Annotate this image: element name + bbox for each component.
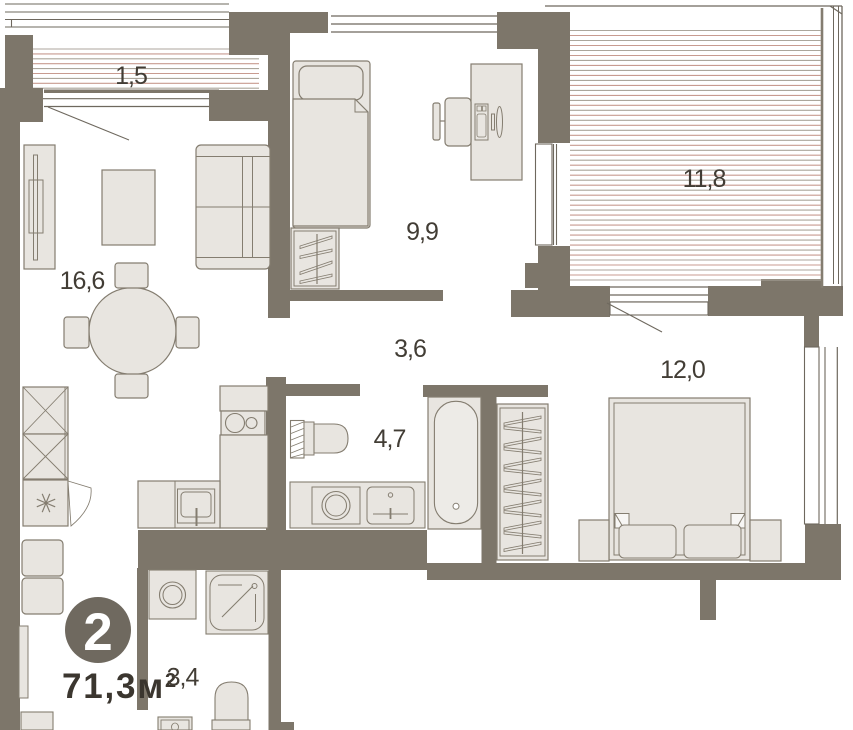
- svg-text:16,6: 16,6: [60, 267, 105, 295]
- svg-text:3,4: 3,4: [167, 664, 200, 692]
- svg-text:3,6: 3,6: [394, 335, 426, 363]
- svg-text:9,9: 9,9: [406, 218, 438, 246]
- svg-text:1,5: 1,5: [115, 62, 147, 90]
- svg-text:4,7: 4,7: [374, 425, 406, 453]
- svg-text:12,0: 12,0: [660, 356, 705, 384]
- svg-text:11,8: 11,8: [683, 165, 726, 193]
- svg-text:71,3м2: 71,3м2: [62, 667, 178, 706]
- svg-text:2: 2: [83, 603, 112, 662]
